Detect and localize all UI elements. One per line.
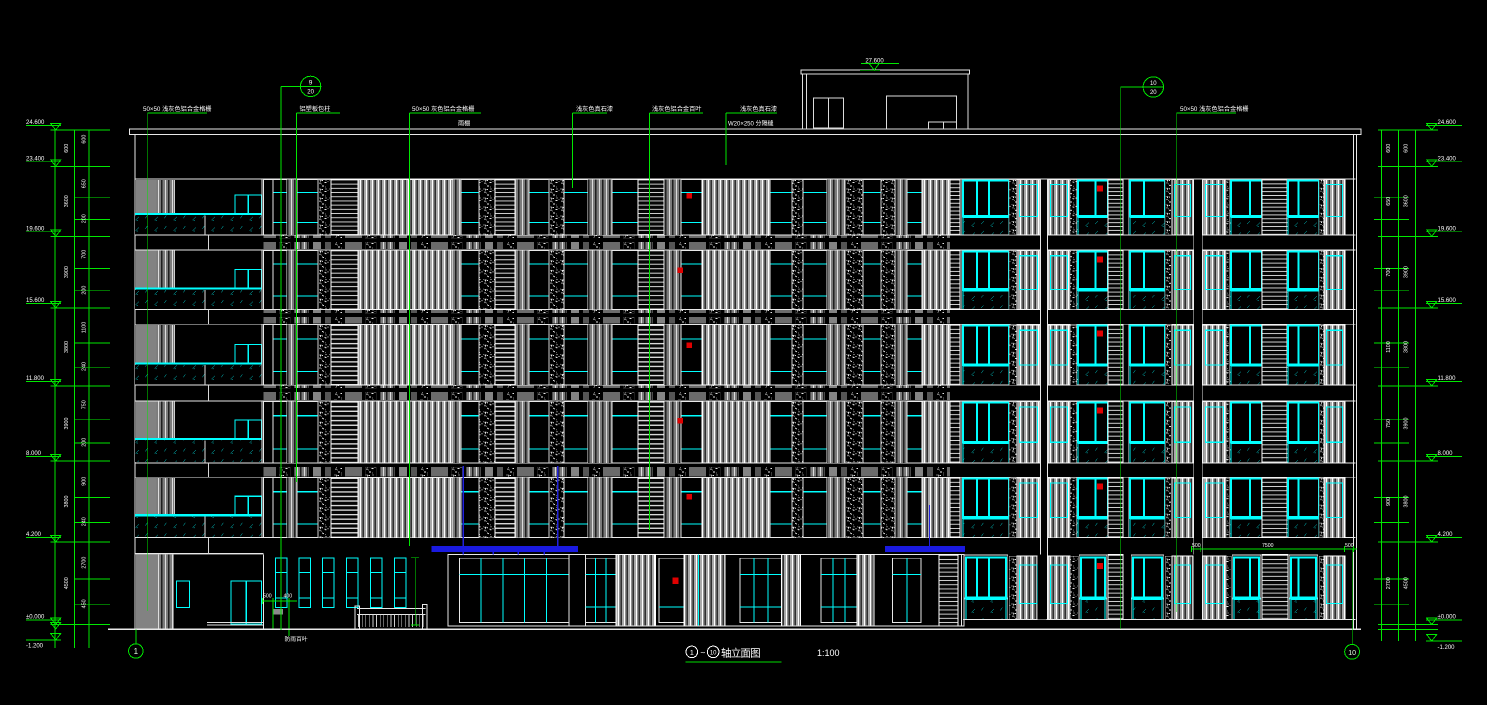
svg-text:~: ~	[700, 648, 705, 658]
svg-text:10: 10	[1150, 81, 1157, 87]
svg-text:750: 750	[1386, 419, 1392, 428]
svg-text:600: 600	[82, 135, 88, 144]
svg-text:3900: 3900	[1404, 418, 1410, 430]
svg-text:浅灰色铝合金百叶: 浅灰色铝合金百叶	[652, 105, 702, 113]
svg-text:500: 500	[1345, 543, 1354, 549]
svg-text:500: 500	[1192, 543, 1201, 549]
svg-text:3800: 3800	[64, 496, 70, 508]
svg-text:240: 240	[82, 517, 88, 526]
svg-text:3800: 3800	[1404, 496, 1410, 508]
svg-text:200: 200	[82, 214, 88, 223]
svg-text:3900: 3900	[64, 266, 70, 278]
svg-text:240: 240	[82, 362, 88, 371]
svg-text:200: 200	[82, 286, 88, 295]
svg-text:600: 600	[1386, 144, 1392, 153]
svg-text:700: 700	[1386, 268, 1392, 277]
svg-text:雨棚: 雨棚	[458, 120, 470, 128]
svg-text:20: 20	[1150, 90, 1157, 96]
svg-text:浅灰色真石漆: 浅灰色真石漆	[740, 105, 777, 113]
svg-text:700: 700	[82, 250, 88, 259]
svg-text:轴立面图: 轴立面图	[721, 647, 760, 660]
svg-text:650: 650	[1386, 197, 1392, 206]
svg-text:50×50 灰色铝合金格栅: 50×50 灰色铝合金格栅	[412, 105, 474, 113]
svg-text:900: 900	[82, 477, 88, 486]
svg-text:2700: 2700	[82, 557, 88, 569]
svg-text:1: 1	[134, 647, 139, 656]
svg-text:3800: 3800	[64, 341, 70, 353]
svg-text:50×50 浅灰色铝合金格栅: 50×50 浅灰色铝合金格栅	[143, 105, 212, 113]
svg-text:10: 10	[1348, 650, 1356, 657]
svg-text:3600: 3600	[64, 195, 70, 207]
svg-text:4500: 4500	[64, 577, 70, 589]
svg-text:400: 400	[284, 594, 293, 600]
svg-text:1100: 1100	[82, 322, 88, 334]
svg-text:W20×250 分隔缝: W20×250 分隔缝	[728, 120, 774, 128]
svg-text:200: 200	[82, 438, 88, 447]
svg-text:2700: 2700	[1386, 577, 1392, 589]
svg-text:3800: 3800	[1404, 341, 1410, 353]
svg-text:3600: 3600	[1404, 195, 1410, 207]
svg-text:600: 600	[64, 144, 70, 153]
svg-text:50×50 浅灰色铝合金格栅: 50×50 浅灰色铝合金格栅	[1180, 105, 1249, 113]
svg-text:-1.200: -1.200	[1438, 645, 1456, 651]
svg-text:3900: 3900	[64, 418, 70, 430]
svg-text:1100: 1100	[1386, 341, 1392, 353]
svg-text:600: 600	[1404, 144, 1410, 153]
svg-text:4500: 4500	[1404, 577, 1410, 589]
svg-text:20: 20	[307, 90, 314, 96]
svg-text:500: 500	[263, 594, 272, 600]
svg-text:3900: 3900	[1404, 266, 1410, 278]
svg-text:10: 10	[710, 650, 717, 656]
svg-text:铝塑板包柱: 铝塑板包柱	[300, 105, 331, 113]
svg-text:900: 900	[1386, 497, 1392, 506]
svg-text:450: 450	[82, 599, 88, 608]
svg-text:-1.200: -1.200	[26, 644, 44, 650]
svg-text:7500: 7500	[1262, 543, 1274, 549]
svg-text:750: 750	[82, 400, 88, 409]
svg-text:浅灰色真石漆: 浅灰色真石漆	[576, 105, 613, 113]
svg-text:9: 9	[309, 80, 313, 87]
svg-text:1:100: 1:100	[817, 648, 840, 658]
svg-text:防雨百叶: 防雨百叶	[285, 635, 308, 643]
svg-text:1: 1	[690, 648, 694, 657]
svg-text:650: 650	[82, 179, 88, 188]
